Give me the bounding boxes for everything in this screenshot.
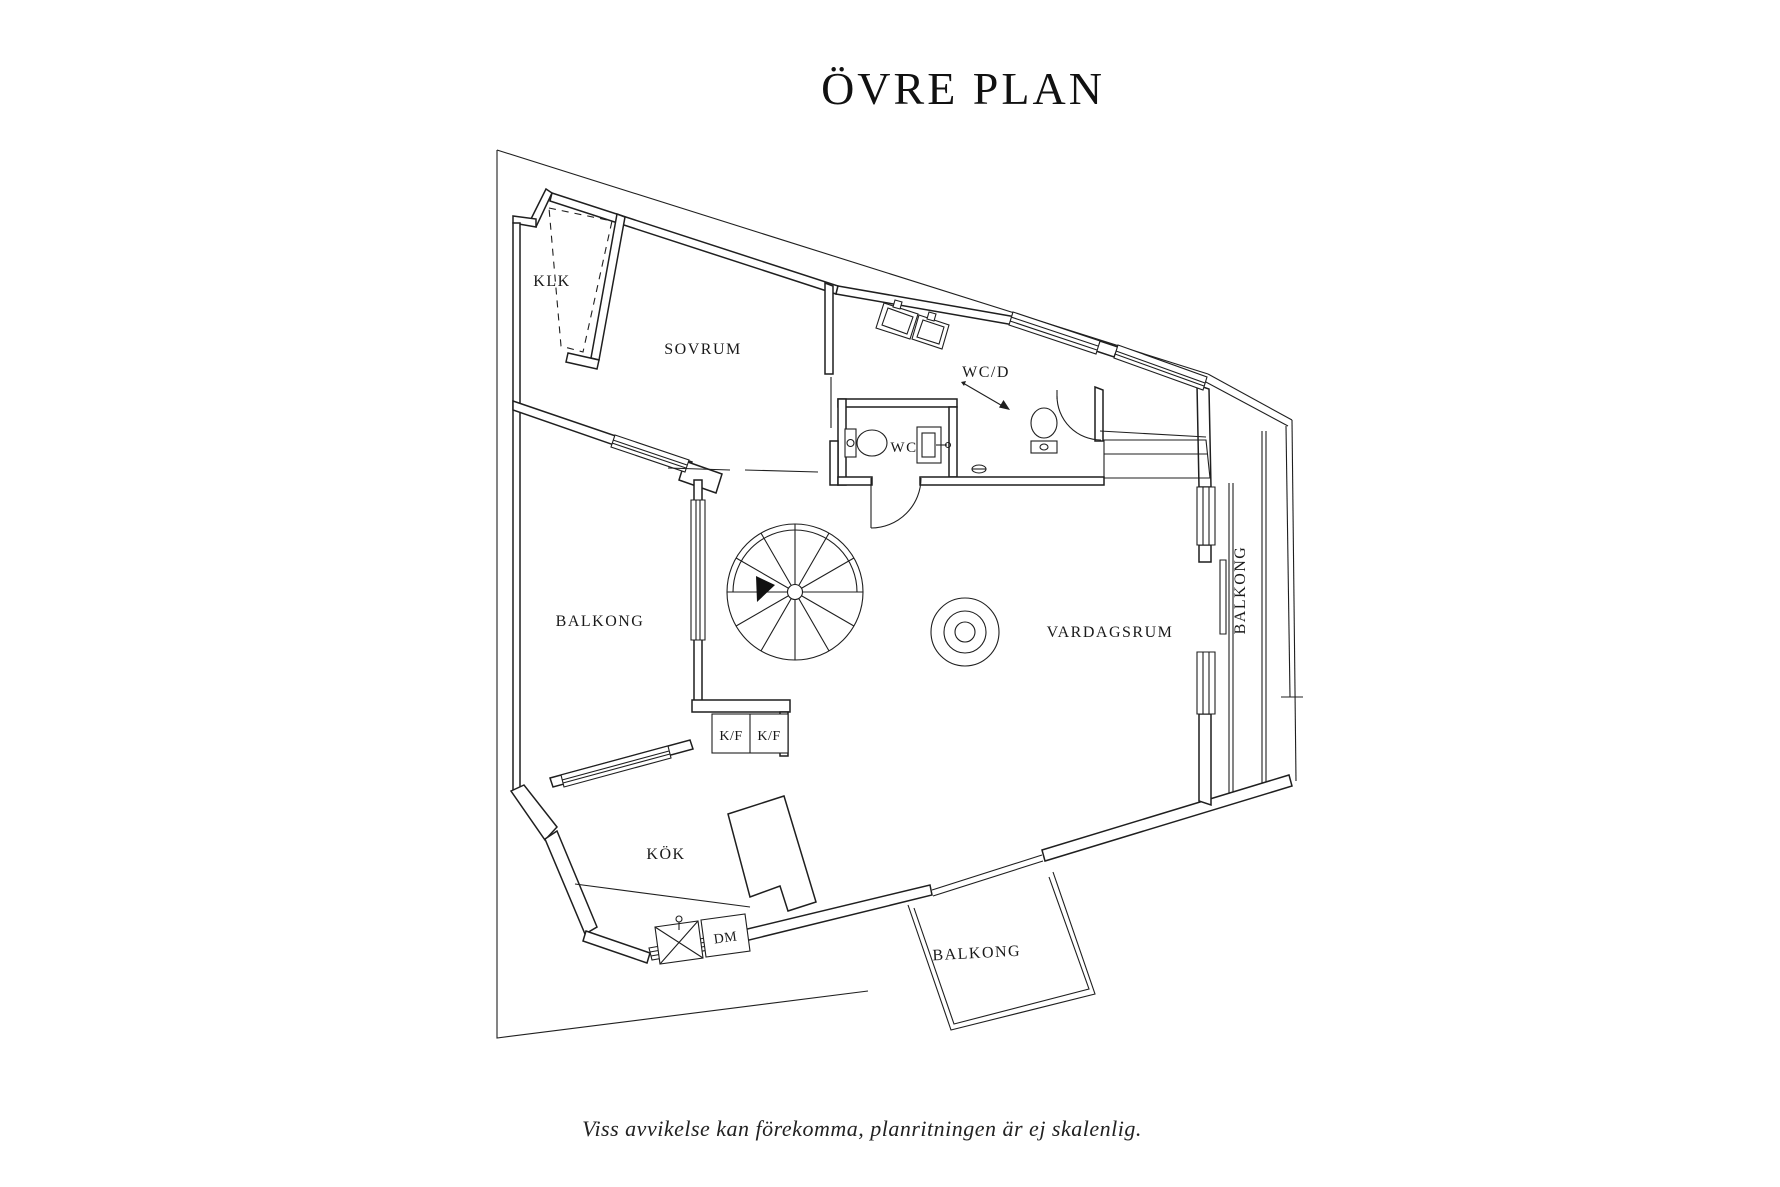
page-title: ÖVRE PLAN bbox=[821, 63, 1105, 114]
dishwasher-box: DM bbox=[701, 914, 750, 957]
window-top-1 bbox=[1009, 312, 1100, 354]
shower-niche bbox=[917, 427, 951, 463]
fridge-freezer-boxes: K/F K/F bbox=[712, 714, 788, 753]
room-label-klk: KLK bbox=[533, 273, 570, 290]
floor-plan-svg: DM K/F K/F ÖVRE PLAN KLK SOVRUM WC/D WC … bbox=[0, 0, 1780, 1187]
window-sovrum bbox=[611, 435, 689, 472]
room-label-kok: KÖK bbox=[646, 845, 685, 863]
stair-direction-arrow bbox=[756, 576, 775, 602]
window-livingroom-1 bbox=[1197, 487, 1215, 545]
wardrobe-top-right bbox=[1100, 431, 1210, 478]
window-balcony-left bbox=[691, 500, 705, 640]
room-label-balkong-bottom: BALKONG bbox=[932, 943, 1021, 965]
floor-drain-icon bbox=[972, 465, 986, 473]
disclaimer-text: Viss avvikelse kan förekomma, planritnin… bbox=[582, 1116, 1142, 1141]
balcony-door-bottom bbox=[932, 855, 1043, 896]
plot-boundary bbox=[497, 150, 1303, 1038]
spiral-staircase bbox=[727, 524, 863, 660]
balcony-door-right bbox=[1220, 560, 1226, 634]
floor-plan-page: DM K/F K/F ÖVRE PLAN KLK SOVRUM WC/D WC … bbox=[0, 0, 1780, 1187]
vanity-sink-icon-2 bbox=[912, 312, 949, 349]
fridge-freezer-label-right: K/F bbox=[757, 729, 780, 744]
sliding-door-hall bbox=[668, 377, 831, 472]
fireplace-icon bbox=[931, 598, 999, 666]
room-label-balkong-left: BALKONG bbox=[556, 613, 645, 630]
toilet-icon-wcd bbox=[1031, 408, 1057, 453]
kitchen-counter-edge bbox=[575, 884, 750, 907]
fridge-freezer-label-left: K/F bbox=[719, 729, 742, 744]
room-label-wcd: WC/D bbox=[962, 364, 1010, 381]
window-top-2 bbox=[1114, 345, 1207, 390]
window-balcony-kitchen bbox=[561, 746, 671, 787]
kitchen-sink-icon bbox=[655, 916, 703, 964]
window-livingroom-2 bbox=[1197, 652, 1215, 714]
wc-door bbox=[871, 478, 921, 528]
room-label-wc: WC bbox=[890, 440, 917, 456]
room-label-vardagsrum: VARDAGSRUM bbox=[1047, 624, 1174, 641]
room-label-balkong-right: BALKONG bbox=[1232, 546, 1249, 635]
wcd-pointer-arrow bbox=[961, 381, 1010, 410]
toilet-icon-wc bbox=[845, 429, 887, 457]
room-label-sovrum: SOVRUM bbox=[664, 341, 741, 358]
